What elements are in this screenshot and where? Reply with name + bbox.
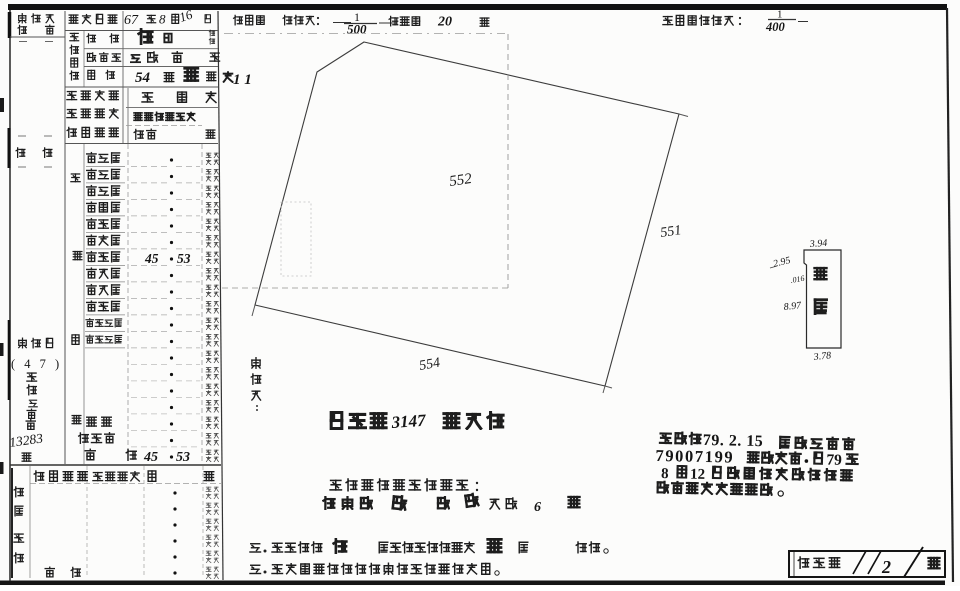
svg-text:54: 54 <box>135 70 151 86</box>
svg-text:45: 45 <box>143 450 158 465</box>
svg-text:8: 8 <box>661 466 669 482</box>
svg-text:500: 500 <box>347 22 367 37</box>
svg-text:1 1: 1 1 <box>233 72 252 88</box>
svg-text:2: 2 <box>881 557 891 577</box>
svg-text:8.97: 8.97 <box>783 300 803 313</box>
svg-text:( 4 7 ): ( 4 7 ) <box>11 357 62 371</box>
svg-text:1: 1 <box>777 9 783 21</box>
svg-text:8: 8 <box>159 12 166 27</box>
svg-text:6: 6 <box>534 500 541 515</box>
svg-text:3147: 3147 <box>390 411 428 432</box>
svg-text:20: 20 <box>437 15 452 30</box>
svg-text:53: 53 <box>177 251 191 266</box>
svg-text:79: 79 <box>826 451 842 468</box>
svg-text:45: 45 <box>144 251 159 266</box>
svg-text:400: 400 <box>765 20 786 34</box>
svg-text:67: 67 <box>124 13 139 28</box>
svg-text:53: 53 <box>176 450 190 465</box>
svg-text:79007199: 79007199 <box>655 446 734 467</box>
svg-text:552: 552 <box>448 171 473 190</box>
svg-text:12: 12 <box>690 467 705 483</box>
svg-text:3.94: 3.94 <box>808 238 827 250</box>
svg-text:3.78: 3.78 <box>812 350 832 363</box>
svg-text:551: 551 <box>659 223 682 241</box>
